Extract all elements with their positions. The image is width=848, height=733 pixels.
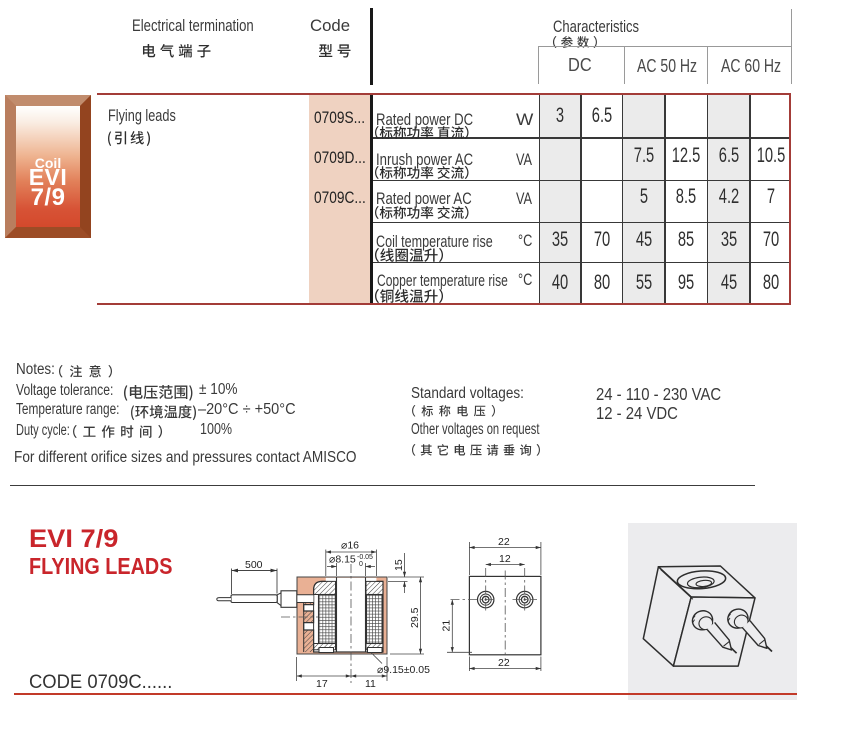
svg-text:0: 0 [359, 561, 363, 568]
svg-text:22: 22 [498, 657, 510, 669]
svg-text:17: 17 [316, 678, 328, 690]
svg-text:21: 21 [441, 620, 453, 632]
svg-text:500: 500 [245, 559, 263, 571]
svg-text:22: 22 [498, 536, 510, 548]
svg-text:15: 15 [393, 559, 405, 571]
svg-text:⌀9.15±0.05: ⌀9.15±0.05 [377, 664, 430, 676]
svg-text:⌀16: ⌀16 [341, 540, 359, 552]
svg-text:-0.05: -0.05 [357, 554, 373, 561]
svg-text:29.5: 29.5 [409, 607, 421, 628]
svg-text:11: 11 [365, 678, 376, 690]
svg-text:12: 12 [499, 553, 511, 565]
svg-text:⌀8.15: ⌀8.15 [329, 554, 356, 566]
